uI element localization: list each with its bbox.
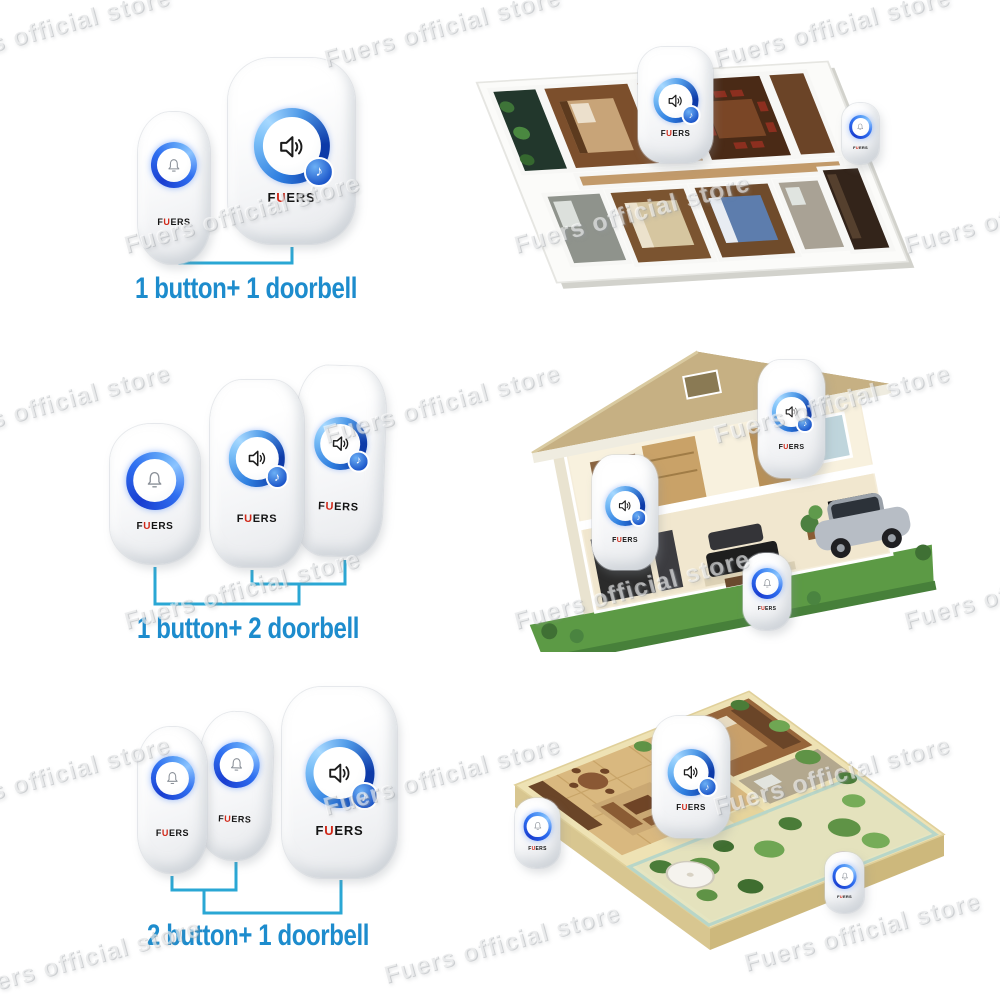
music-note-badge: ♪ (630, 509, 647, 526)
kit-label-row2: 1 button+ 2 doorbell (128, 612, 368, 646)
music-note-badge: ♪ (796, 416, 814, 434)
music-note-icon: ♪ (803, 420, 807, 428)
speaker-icon (275, 130, 309, 164)
bracket-row3-join (204, 880, 341, 913)
music-note-badge: ♪ (265, 465, 288, 488)
music-note-badge: ♪ (304, 157, 334, 187)
fuers-logo: FUERS (652, 803, 730, 812)
logo-letters: ERS (334, 501, 359, 514)
led-ring: ♪ (313, 416, 368, 471)
bell-icon (227, 754, 247, 774)
logo-letters: ERS (151, 521, 173, 532)
button-press-area (527, 816, 548, 837)
call-button-scene: FUERS (743, 553, 791, 630)
fuers-logo: FUERS (743, 606, 791, 612)
led-ring: ♪ (305, 739, 374, 808)
logo-letter-red: U (324, 823, 334, 838)
bell-icon (164, 156, 184, 176)
call-button: FUERS (110, 424, 200, 564)
logo-letters: ERS (859, 145, 868, 150)
music-note-icon: ♪ (705, 783, 710, 792)
led-ring: ♪ (253, 108, 329, 184)
watermark-text: Fuers official store (0, 0, 173, 74)
fuers-logo: FUERS (825, 894, 864, 899)
led-ring (752, 568, 783, 599)
button-press-area (219, 747, 254, 782)
house-cutaway-illustration (462, 342, 1000, 652)
logo-letters: ERS (688, 803, 706, 812)
speaker-icon (681, 762, 702, 783)
logo-letter: F (268, 190, 277, 205)
kit-label-row1: 1 button+ 1 doorbell (126, 272, 366, 306)
bell-icon (855, 122, 865, 132)
doorbell-receiver: ♪ FUERS (228, 58, 355, 244)
product-collage: FUERS ♪ FUERS ♪ FUERS FUERS (0, 0, 1000, 1000)
music-note-icon: ♪ (636, 514, 640, 522)
logo-letters: ERS (231, 814, 251, 825)
button-press-area (835, 867, 853, 885)
doorbell-receiver-scene: ♪ FUERS (638, 47, 713, 163)
call-button: FUERS (138, 112, 210, 264)
fuers-logo: FUERS (138, 828, 207, 838)
fuers-logo: FUERS (210, 513, 304, 525)
call-button-scene: FUERS (842, 103, 879, 164)
led-ring: ♪ (653, 78, 698, 123)
logo-letter: F (316, 823, 325, 838)
doorbell-receiver-scene: ♪ FUERS (758, 360, 825, 478)
call-button-front: FUERS (138, 727, 207, 873)
button-press-area (852, 118, 870, 136)
music-note-icon: ♪ (356, 456, 362, 467)
led-ring (150, 756, 194, 800)
logo-letters: ERS (765, 606, 776, 612)
bell-icon (760, 577, 773, 590)
music-note-icon: ♪ (274, 471, 280, 483)
led-ring (126, 452, 184, 510)
apartment-floorplan-illustration (470, 30, 1000, 310)
logo-letters: ERS (672, 129, 690, 138)
call-button-back: FUERS (197, 711, 274, 861)
logo-letters: ERS (843, 894, 852, 899)
kit-label-row3: 2 button+ 1 doorbell (138, 919, 378, 953)
logo-letters: ERS (622, 537, 638, 544)
call-button-scene: FUERS (515, 798, 560, 868)
logo-letter: F (237, 513, 244, 525)
logo-letters: ERS (169, 828, 189, 838)
logo-letter-red: U (162, 828, 169, 838)
fuers-logo: FUERS (638, 129, 713, 138)
led-ring (849, 115, 873, 139)
led-ring (832, 864, 857, 889)
speaker-icon (245, 446, 270, 471)
led-ring: ♪ (605, 486, 645, 526)
fuers-logo: FUERS (228, 190, 355, 205)
doorbell-receiver: ♪ FUERS (282, 687, 397, 878)
button-press-area (157, 148, 191, 182)
logo-letters: ERS (789, 444, 805, 451)
bell-icon (163, 769, 182, 788)
button-press-area (156, 762, 189, 795)
led-ring (151, 142, 197, 188)
led-ring (213, 741, 261, 789)
speaker-icon (329, 432, 353, 456)
led-ring: ♪ (668, 749, 715, 796)
button-press-area (134, 459, 177, 502)
logo-letters: ERS (286, 190, 315, 205)
fuers-logo: FUERS (199, 813, 271, 826)
call-button-scene: FUERS (825, 852, 864, 913)
led-ring: ♪ (771, 392, 811, 432)
fuers-logo: FUERS (138, 217, 210, 227)
fuers-logo: FUERS (110, 521, 200, 532)
logo-letter-red: U (143, 521, 151, 532)
music-note-icon: ♪ (361, 789, 368, 803)
fuers-logo: FUERS (515, 846, 560, 852)
music-note-icon: ♪ (689, 111, 694, 120)
speaker-icon (324, 758, 354, 788)
fuers-logo: FUERS (842, 145, 879, 150)
music-note-icon: ♪ (315, 164, 323, 179)
music-note-badge: ♪ (681, 105, 700, 124)
music-note-badge: ♪ (347, 450, 370, 473)
logo-letters: ERS (253, 513, 278, 525)
music-note-badge: ♪ (351, 782, 378, 809)
led-ring: ♪ (229, 430, 285, 486)
bracket-row2-join (155, 567, 299, 604)
bell-icon (143, 468, 168, 493)
logo-letter-red: U (276, 190, 286, 205)
logo-letters: ERS (536, 846, 547, 852)
music-note-badge: ♪ (697, 777, 717, 797)
logo-letter-red: U (244, 513, 253, 525)
fuers-logo: FUERS (758, 444, 825, 451)
fuers-logo: FUERS (282, 823, 397, 838)
doorbell-receiver-front: ♪ FUERS (210, 380, 304, 567)
logo-letters: ERS (170, 217, 190, 227)
led-ring (523, 812, 552, 841)
button-press-area (756, 572, 779, 595)
bell-icon (839, 871, 850, 882)
doorbell-receiver-scene: ♪ FUERS (592, 455, 658, 570)
fuers-logo: FUERS (592, 537, 658, 544)
logo-letters: ERS (334, 823, 363, 838)
bell-icon (531, 820, 543, 832)
fuers-logo: FUERS (294, 499, 382, 514)
doorbell-receiver-back: ♪ FUERS (293, 365, 388, 558)
doorbell-receiver-scene: ♪ FUERS (652, 716, 730, 838)
